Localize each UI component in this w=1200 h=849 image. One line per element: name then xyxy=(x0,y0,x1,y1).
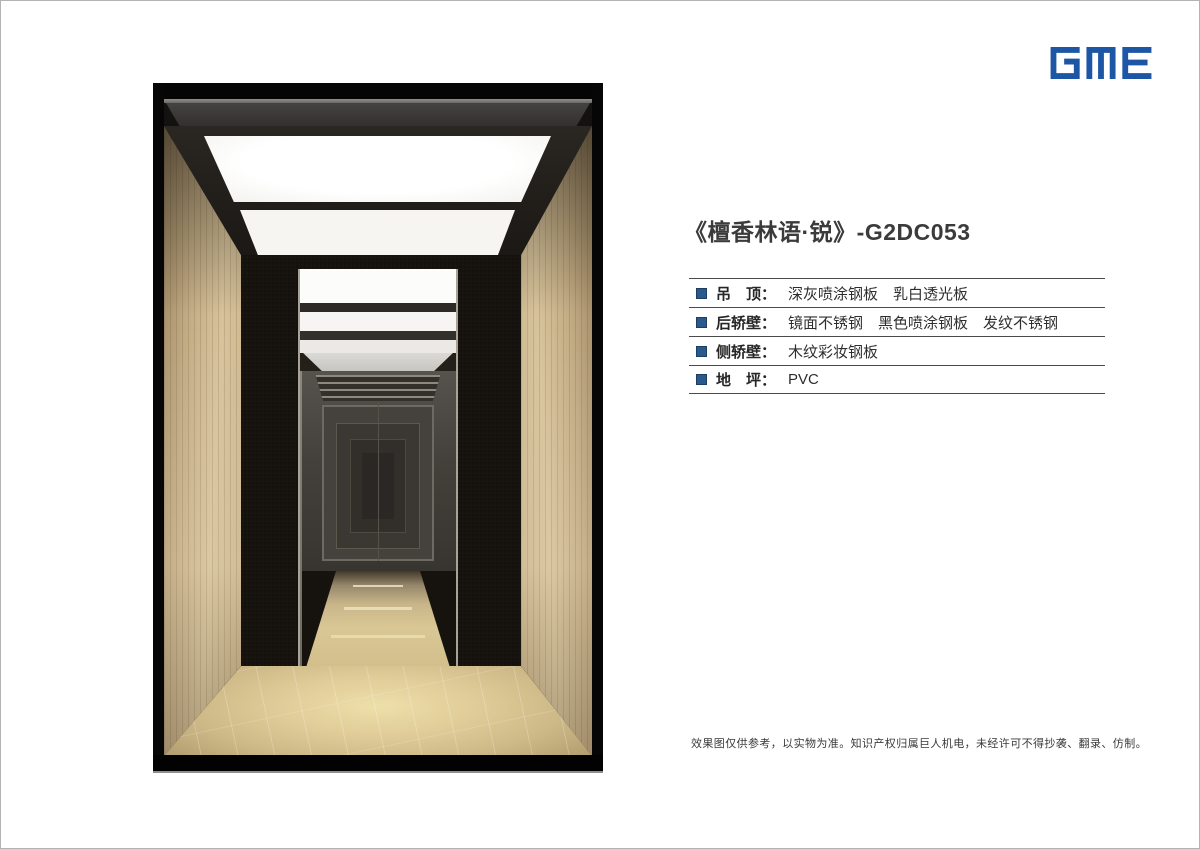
spec-bullet-icon xyxy=(696,317,707,328)
ceiling-light-panel-rear xyxy=(240,210,515,255)
elevator-render xyxy=(153,83,603,773)
logo-letter-g xyxy=(1051,47,1080,79)
frame-bottom-band xyxy=(153,755,603,771)
corridor-slats xyxy=(316,375,441,401)
spec-row-side-wall: 侧轿壁 ： 木纹彩妆钢板 xyxy=(689,336,1105,365)
mirror-light-reflection-band xyxy=(300,312,456,331)
spec-value: 深灰喷涂钢板 乳白透光板 xyxy=(788,283,968,304)
spec-bullet-icon xyxy=(696,374,707,385)
stainless-trim-right xyxy=(300,371,302,666)
spec-colon: ： xyxy=(761,369,776,390)
reflection-step-band xyxy=(344,607,413,610)
frame-right-bar xyxy=(592,83,603,773)
mirror-infinity-corridor xyxy=(300,371,456,571)
logo-letter-m xyxy=(1086,47,1115,79)
spec-row-ceiling: 吊 顶 ： 深灰喷涂钢板 乳白透光板 xyxy=(689,278,1105,307)
mirror-dark-stripe xyxy=(300,303,456,312)
gme-logo: GME xyxy=(1049,47,1153,79)
valance-top-strip xyxy=(164,99,592,103)
spec-bullet-icon xyxy=(696,288,707,299)
reflection-step-band xyxy=(353,585,403,587)
product-title: 《檀香林语·锐》-G2DC053 xyxy=(684,213,971,247)
spec-colon: ： xyxy=(761,341,776,362)
spec-sheet-page: GME xyxy=(0,0,1200,849)
frame-left-bar xyxy=(153,83,164,773)
spec-bullet-icon xyxy=(696,346,707,357)
mirror-dark-stripe xyxy=(300,331,456,340)
mirror-reflected-ceiling-trapezoid xyxy=(300,353,456,371)
rear-wall-mirror-panel xyxy=(298,269,458,666)
frame-top-band xyxy=(153,83,603,99)
spec-value: 木纹彩妆钢板 xyxy=(788,341,878,362)
reflection-dark-wedge-right xyxy=(420,571,456,666)
spec-row-rear-wall: 后轿壁 ： 镜面不锈钢 黑色喷涂钢板 发纹不锈钢 xyxy=(689,307,1105,336)
spec-colon: ： xyxy=(761,283,776,304)
corridor-door-seam xyxy=(378,401,379,561)
front-valance-panel xyxy=(166,103,590,126)
mirror-light-reflection-band xyxy=(300,269,456,303)
spec-label: 后轿壁 xyxy=(716,312,761,333)
footer-disclaimer: 效果图仅供参考，以实物为准。知识产权归属巨人机电，未经许可不得抄袭、翻录、仿制。 xyxy=(691,735,1147,751)
spec-value: 镜面不锈钢 黑色喷涂钢板 发纹不锈钢 xyxy=(788,312,1058,333)
spec-label: 吊 顶 xyxy=(716,283,761,304)
frame-bottom-edge-line xyxy=(153,771,603,773)
spec-label: 地 坪 xyxy=(716,369,761,390)
spec-table: 吊 顶 ： 深灰喷涂钢板 乳白透光板 后轿壁 ： 镜面不锈钢 黑色喷涂钢板 发纹… xyxy=(689,278,1105,394)
logo-letter-e xyxy=(1122,47,1151,79)
ceiling-light-panel-front xyxy=(204,136,551,202)
mirror-light-reflection-band xyxy=(300,340,456,353)
spec-value: PVC xyxy=(788,371,819,388)
reflection-dark-wedge-left xyxy=(300,571,336,666)
spec-label: 侧轿壁 xyxy=(716,341,761,362)
reflection-step-band xyxy=(331,635,425,638)
mirror-floor-reflection xyxy=(300,571,456,666)
spec-row-floor: 地 坪 ： PVC xyxy=(689,365,1105,394)
spec-colon: ： xyxy=(761,312,776,333)
